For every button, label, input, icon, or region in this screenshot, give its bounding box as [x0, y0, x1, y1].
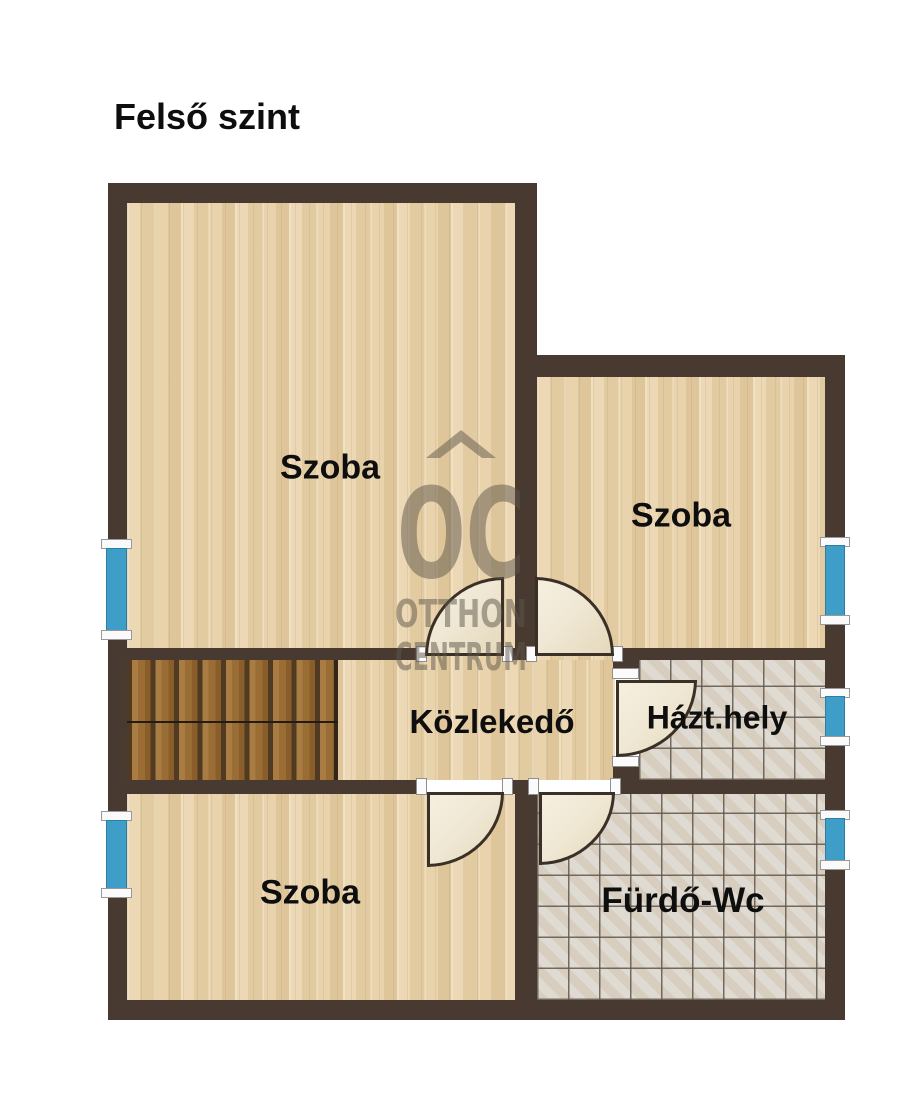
- door-jamb-cap: [528, 778, 539, 795]
- door-jamb-cap: [612, 668, 639, 679]
- door-jamb-cap: [612, 756, 639, 767]
- window-sill-cap: [820, 860, 850, 870]
- window-sill-cap: [101, 888, 132, 898]
- room-label-szoba-bottom: Szoba: [260, 874, 360, 913]
- wall-between-szoba-bottom-and-furdo: [515, 780, 537, 1020]
- stairs: [127, 658, 338, 782]
- room-label-furdo-wc: Fürdő-Wc: [601, 881, 764, 921]
- window-sill-cap: [820, 615, 850, 625]
- room-label-kozlekedo: Közlekedő: [409, 703, 574, 741]
- room-label-szoba-right: Szoba: [631, 497, 731, 536]
- window-hazt-hely-right: [825, 696, 845, 738]
- window-sill-cap: [101, 630, 132, 640]
- page-title: Felső szint: [114, 96, 300, 138]
- window-szoba-main-left: [106, 548, 127, 632]
- wall-exterior-top: [108, 183, 537, 203]
- window-szoba-right-right: [825, 545, 845, 617]
- wall-exterior-bottom: [108, 1000, 845, 1020]
- wall-hall-top-east: [613, 648, 825, 660]
- wall-szoba-right-top: [515, 355, 845, 377]
- wall-between-szoba-main-and-right: [515, 183, 537, 660]
- room-label-szoba-main: Szoba: [280, 449, 380, 488]
- window-szoba-bottom-left: [106, 820, 127, 890]
- room-label-hazt-hely: Házt.hely: [647, 700, 787, 737]
- wall-hall-bottom-east: [611, 780, 825, 794]
- wall-hall-bottom-west: [127, 780, 425, 794]
- door-jamb-cap: [416, 778, 427, 795]
- wall-hall-top-west: [127, 648, 425, 660]
- stairs-mid-landing-line: [127, 721, 338, 723]
- window-sill-cap: [820, 736, 850, 746]
- floor-plan-canvas: Felső szint: [0, 0, 920, 1100]
- window-furdo-right: [825, 818, 845, 862]
